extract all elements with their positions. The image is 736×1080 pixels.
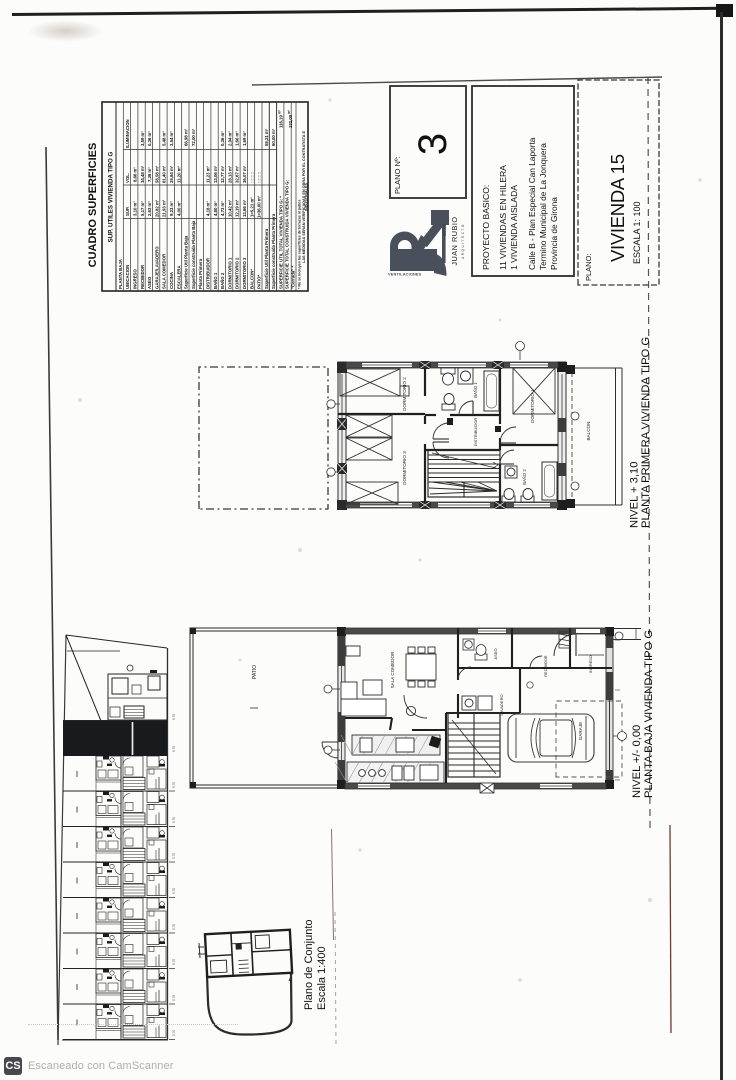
svg-text:3,59 m²: 3,59 m² xyxy=(140,131,145,146)
svg-text:BAÑO 1: BAÑO 1 xyxy=(213,272,218,289)
svg-text:32,67 m²: 32,67 m² xyxy=(235,165,240,183)
svg-text:Plano de Conjunto: Plano de Conjunto xyxy=(303,919,315,1010)
svg-text:::::::::: :::::::: xyxy=(249,171,254,183)
svg-text:ESCALA 1: 100: ESCALA 1: 100 xyxy=(632,201,642,264)
svg-text:58,58 m²: 58,58 m² xyxy=(154,165,159,183)
svg-text:Superficie construida Planta B: Superficie construida Planta Baja xyxy=(191,220,196,289)
svg-text:COCINA: COCINA xyxy=(169,272,174,289)
svg-text:NIVEL + 3,10: NIVEL + 3,10 xyxy=(629,462,641,528)
svg-text:VOL.: VOL. xyxy=(125,173,130,183)
svg-text:PROYECTO BASICO:: PROYECTO BASICO: xyxy=(481,185,491,270)
svg-text:1,69 m²: 1,69 m² xyxy=(242,131,247,146)
svg-text:36,07 m²: 36,07 m² xyxy=(242,165,247,183)
svg-text:Superficie construida Planta P: Superficie construida Planta Primera xyxy=(271,213,276,289)
svg-text:5.70: 5.70 xyxy=(172,1030,176,1036)
svg-text:NIVEL +/- 0,00: NIVEL +/- 0,00 xyxy=(631,725,643,798)
svg-text:DISTRIBUIDOR: DISTRIBUIDOR xyxy=(206,257,211,289)
svg-text:PLANO Nº:: PLANO Nº: xyxy=(393,156,402,194)
svg-text:DORMITORIO 1: DORMITORIO 1 xyxy=(227,257,232,289)
svg-text:4,73 m²: 4,73 m² xyxy=(220,201,225,216)
svg-text:SALA COMEDOR: SALA COMEDOR xyxy=(390,651,395,688)
svg-text:5.70: 5.70 xyxy=(172,714,176,720)
svg-text:13,66 m²: 13,66 m² xyxy=(242,199,247,217)
svg-text:UBICACION: UBICACION xyxy=(125,265,130,289)
svg-text:DORMITORIO 2: DORMITORIO 2 xyxy=(235,257,240,289)
svg-text:JUAN RUBIO: JUAN RUBIO xyxy=(450,216,459,265)
svg-text:4,00 m²: 4,00 m² xyxy=(176,201,181,216)
svg-text:INGRESO: INGRESO xyxy=(589,655,593,673)
svg-text:BAÑO 2: BAÑO 2 xyxy=(522,469,527,485)
svg-text:3,54 m²: 3,54 m² xyxy=(169,131,174,146)
svg-text:12,77 m²: 12,77 m² xyxy=(220,165,225,183)
svg-text:SALA COMEDOR: SALA COMEDOR xyxy=(162,253,167,289)
svg-text:4,18 m²: 4,18 m² xyxy=(206,201,211,216)
svg-text:Planta Primera: Planta Primera xyxy=(198,258,203,289)
svg-text:Escala 1:400: Escala 1:400 xyxy=(316,946,328,1010)
svg-text:3: 3 xyxy=(411,133,455,155)
svg-text:8,66 m²: 8,66 m² xyxy=(133,167,138,182)
svg-text:DORMITORIO 2: DORMITORIO 2 xyxy=(402,377,407,411)
svg-text:BAÑO 1: BAÑO 1 xyxy=(473,382,478,398)
svg-text:CUADRO SUPERFICIES: CUADRO SUPERFICIES xyxy=(87,143,99,268)
svg-text:20,82 m²: 20,82 m² xyxy=(154,199,159,217)
svg-text:SUP.: SUP. xyxy=(125,207,130,216)
svg-text:5.70: 5.70 xyxy=(172,746,176,752)
svg-text:2,94 m²: 2,94 m² xyxy=(227,131,232,146)
svg-text:25,84 m²: 25,84 m² xyxy=(169,165,174,183)
svg-text:28,13 m²: 28,13 m² xyxy=(227,165,232,183)
svg-text:ILUMINACION: ILUMINACION xyxy=(125,119,130,148)
svg-text:Superficie Util Planta Primera: Superficie Util Planta Primera xyxy=(264,228,269,289)
svg-text:PLANO:: PLANO: xyxy=(584,253,593,281)
svg-text:INDUSTRIALES: INDUSTRIALES xyxy=(305,183,309,212)
svg-text:GARAJE/LAVADERO: GARAJE/LAVADERO xyxy=(154,246,159,289)
svg-text:"Cerrada" *: "Cerrada" * xyxy=(291,265,296,289)
svg-text:PLANTA PRIMERA VIVIENDA TIPO G: PLANTA PRIMERA VIVIENDA TIPO G xyxy=(640,337,652,528)
svg-text:5,48 m²: 5,48 m² xyxy=(162,131,167,146)
svg-text:PATIO: PATIO xyxy=(252,665,258,679)
svg-text:LAVADERO: LAVADERO xyxy=(499,694,504,715)
svg-text:BAÑO 2: BAÑO 2 xyxy=(220,272,225,289)
svg-text:5.70: 5.70 xyxy=(172,782,176,788)
svg-text:7,36 m²: 7,36 m² xyxy=(147,167,152,182)
svg-text:BALCON: BALCON xyxy=(586,422,591,441)
svg-text:DORMITORIO 1: DORMITORIO 1 xyxy=(530,389,535,423)
svg-text:m²: m² xyxy=(287,109,291,114)
svg-text:5.70: 5.70 xyxy=(172,924,176,930)
svg-text:1=5,21 m²: 1=5,21 m² xyxy=(249,197,254,217)
svg-text:13,06 m²: 13,06 m² xyxy=(213,165,218,183)
svg-text:0,36 m²: 0,36 m² xyxy=(220,131,225,146)
svg-text:66,98 m²: 66,98 m² xyxy=(184,128,189,146)
svg-text:72,00 m²: 72,00 m² xyxy=(191,128,196,146)
svg-text:m²: m² xyxy=(277,109,281,114)
svg-text:ARQUITECTO: ARQUITECTO xyxy=(461,223,465,259)
svg-text:Termino Municipal de La Jonque: Termino Municipal de La Jonquera xyxy=(538,143,548,270)
svg-text:21,93 m²: 21,93 m² xyxy=(162,199,167,217)
svg-text:12,19 m²: 12,19 m² xyxy=(235,199,240,217)
svg-text:2,63 m²: 2,63 m² xyxy=(147,201,152,216)
svg-text:INGRESO: INGRESO xyxy=(133,269,138,289)
svg-text:3,10 m²: 3,10 m² xyxy=(133,201,138,216)
svg-text:5.70: 5.70 xyxy=(172,853,176,859)
svg-text:61,40 m²: 61,40 m² xyxy=(162,165,167,183)
svg-text:PATIO*: PATIO* xyxy=(257,275,262,289)
svg-text:1,66 m²: 1,66 m² xyxy=(235,131,240,146)
svg-text:DORMITORIO 3: DORMITORIO 3 xyxy=(242,257,247,289)
svg-text:GARAJE: GARAJE xyxy=(578,722,583,740)
svg-text:PLANTA BAJA VIVIENDA TIPO G: PLANTA BAJA VIVIENDA TIPO G xyxy=(643,630,655,798)
svg-text:Provincia de Girona: Provincia de Girona xyxy=(549,197,559,270)
svg-text:5.70: 5.70 xyxy=(172,995,176,1001)
svg-text:0,36 m²: 0,36 m² xyxy=(147,131,152,146)
svg-text:BALCON*: BALCON* xyxy=(249,269,254,289)
svg-text:11,20 m²: 11,20 m² xyxy=(176,165,181,183)
svg-text:5.70: 5.70 xyxy=(172,888,176,894)
svg-text:VENTILACIONES: VENTILACIONES xyxy=(388,273,422,277)
svg-text:5.70: 5.70 xyxy=(172,817,176,823)
svg-text:11,23 m²: 11,23 m² xyxy=(206,165,211,183)
svg-text:DORMITORIO 3: DORMITORIO 3 xyxy=(402,451,407,485)
svg-text:DISTRIBUIDOR: DISTRIBUIDOR xyxy=(473,418,478,447)
svg-text:116,19: 116,19 xyxy=(278,114,283,128)
svg-text:ASEO: ASEO xyxy=(147,276,152,289)
svg-text:58,21 m²: 58,21 m² xyxy=(264,128,269,146)
svg-text:SUPERFICIE UTIL TOTAL VIVIENDA: SUPERFICIE UTIL TOTAL VIVIENDA TIPO G: * xyxy=(278,196,283,289)
svg-text:14,48 m²: 14,48 m² xyxy=(140,165,145,183)
svg-text:1=36,00 m²: 1=36,00 m² xyxy=(257,195,262,218)
svg-text:60,00 m²: 60,00 m² xyxy=(271,128,276,146)
svg-text:ASEO: ASEO xyxy=(493,648,498,659)
svg-text:Superficie Util Planta Baja: Superficie Util Planta Baja xyxy=(184,235,189,289)
svg-text:10,42 m²: 10,42 m² xyxy=(227,199,232,217)
svg-text:RECIBIDOR: RECIBIDOR xyxy=(544,655,548,676)
svg-text:::::::::: :::::::: xyxy=(257,171,262,183)
svg-text:9,23 m²: 9,23 m² xyxy=(169,201,174,216)
svg-text:ESCALERA: ESCALERA xyxy=(176,265,181,289)
svg-text:5.70: 5.70 xyxy=(172,959,176,965)
svg-text:Calle B - Plan Especial Can La: Calle B - Plan Especial Can Laporta xyxy=(527,137,537,270)
svg-text:5,17 m²: 5,17 m² xyxy=(140,201,145,216)
svg-text:DIBUJO: DIBUJO xyxy=(443,223,447,236)
svg-text:11 VIVIENDAS EN HILERA: 11 VIVIENDAS EN HILERA xyxy=(498,165,508,270)
svg-text:PLANTA BAJA: PLANTA BAJA xyxy=(118,259,123,289)
svg-text:4,80 m²: 4,80 m² xyxy=(213,201,218,216)
svg-text:SUPERFICIE TOTAL CONSTRUIDA VI: SUPERFICIE TOTAL CONSTRUIDA VIVIENDA TIP… xyxy=(285,179,290,289)
svg-text:132,00: 132,00 xyxy=(288,114,293,128)
svg-text:SUP. UTILES VIVIENDA TIPO G: SUP. UTILES VIVIENDA TIPO G xyxy=(108,151,115,242)
svg-text:1 VIVIENDA AISLADA: 1 VIVIENDA AISLADA xyxy=(509,185,519,270)
svg-text:VIVIENDA 15: VIVIENDA 15 xyxy=(607,154,628,262)
svg-text:RECIBIDOR: RECIBIDOR xyxy=(140,264,145,289)
